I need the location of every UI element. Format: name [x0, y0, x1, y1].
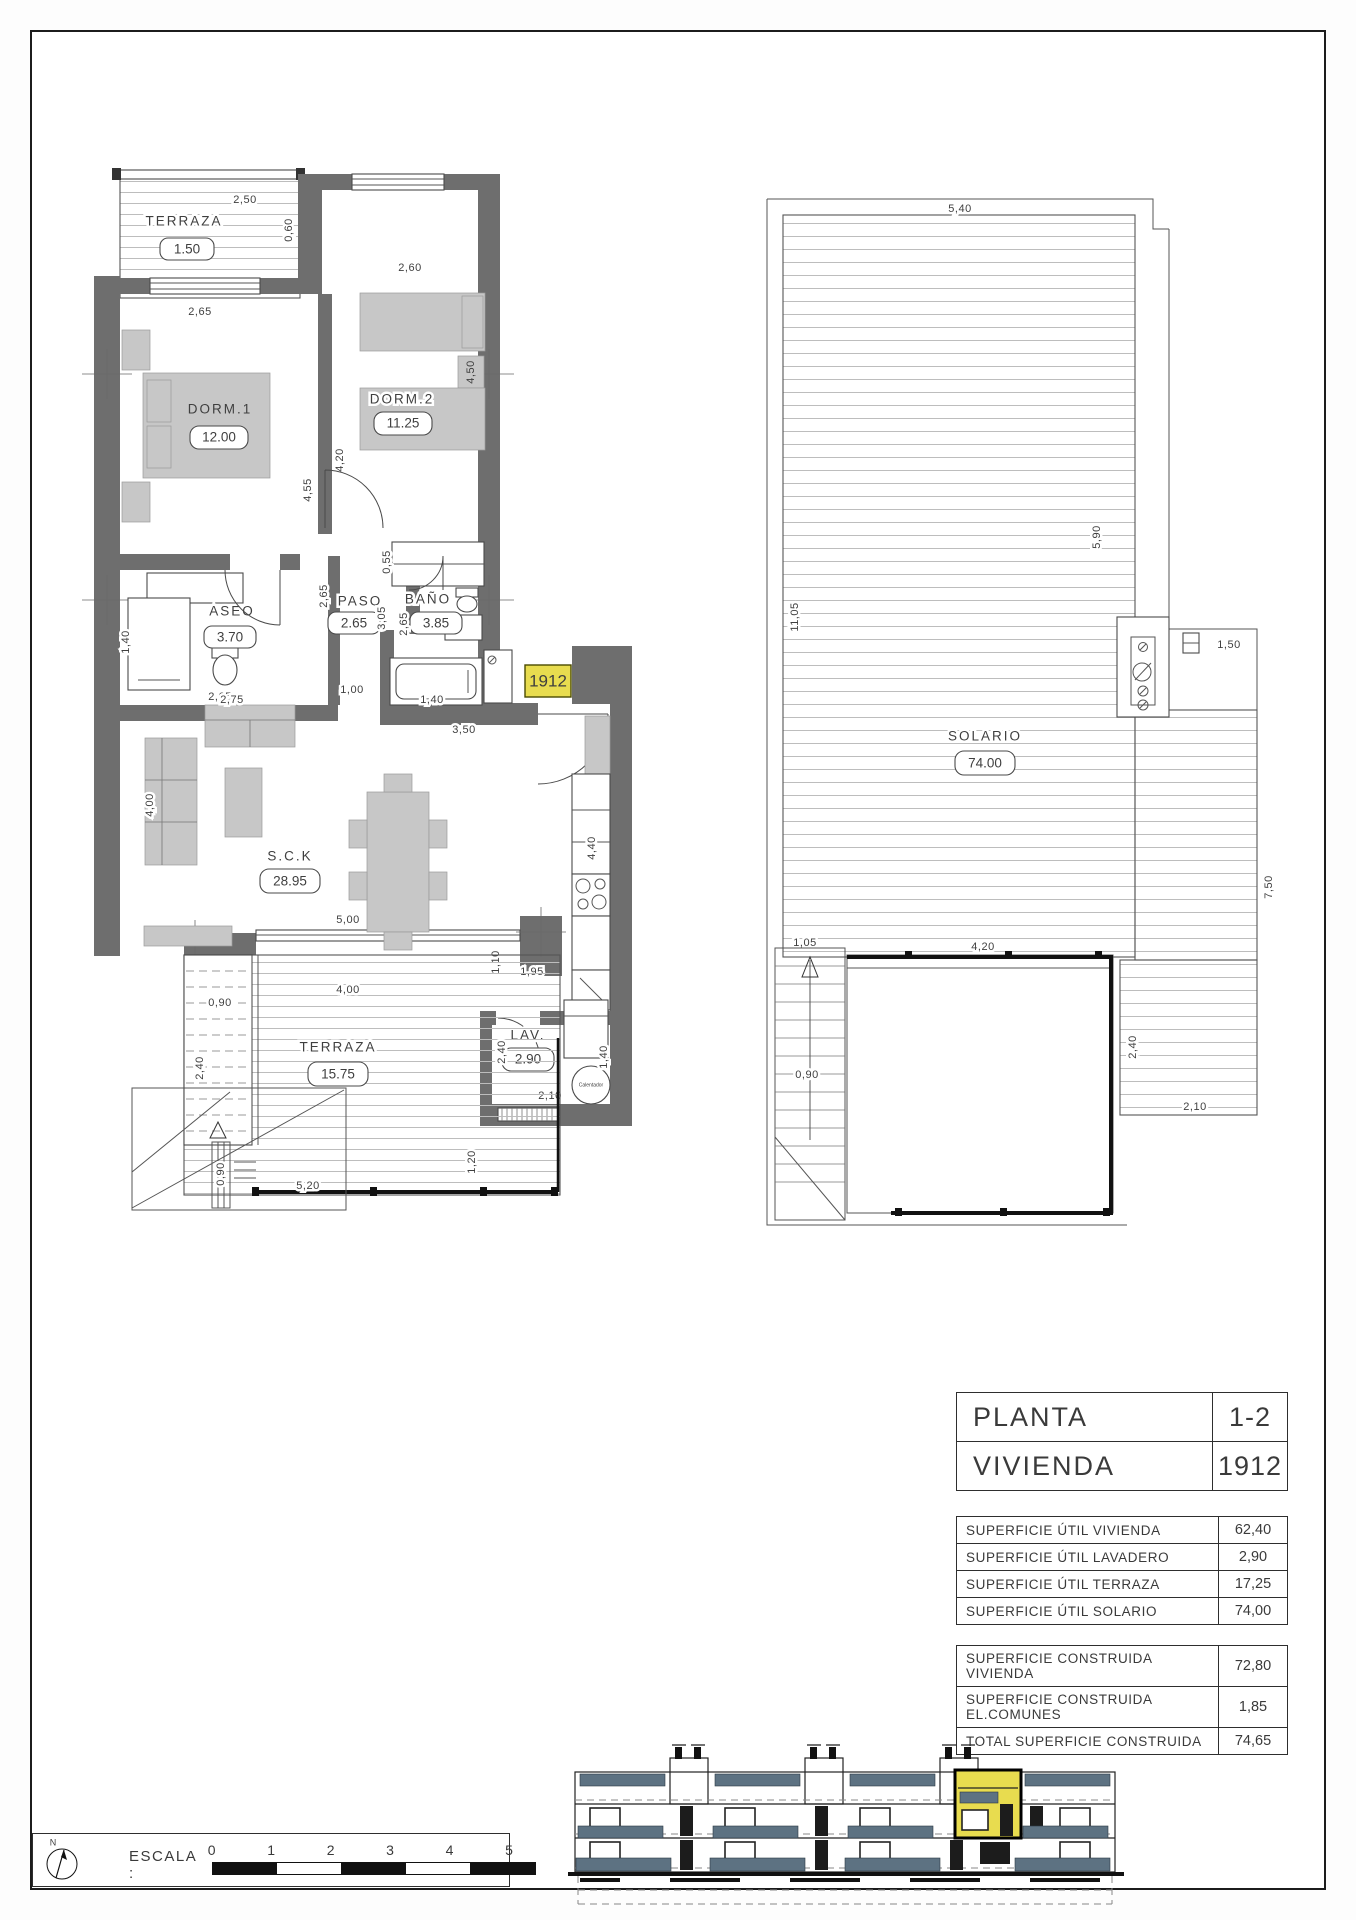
scale-track	[212, 1862, 536, 1875]
highlighted-unit	[955, 1770, 1021, 1838]
row-value: 74,65	[1219, 1728, 1288, 1755]
dim: 0,60	[283, 218, 295, 241]
area-aseo: 3.70	[217, 630, 243, 645]
dim: 1,50	[1217, 639, 1240, 651]
area-terraza-sup: 1.50	[174, 242, 200, 257]
dim: 4,40	[586, 836, 598, 859]
room-label-bano: BAÑO	[405, 592, 451, 607]
scale-tick: 3	[386, 1842, 394, 1858]
dim: 2,40	[496, 1040, 508, 1063]
row-label: SUPERFICIE ÚTIL VIVIENDA	[957, 1517, 1219, 1544]
dim: 11,05	[789, 602, 801, 631]
area-dorm1: 12.00	[202, 430, 236, 445]
solario-stairs: 0,90	[775, 948, 845, 1220]
dim: 2,65	[398, 612, 410, 635]
dim: 0,90	[208, 997, 231, 1009]
dim: 0,90	[215, 1162, 227, 1185]
table-row: SUPERFICIE ÚTIL SOLARIO 74,00	[957, 1598, 1288, 1625]
dim: 1,40	[120, 630, 132, 653]
dim: 5,40	[948, 203, 971, 215]
drawing-sheet: TERRAZA 1.50 2,50 0,60	[0, 0, 1356, 1920]
row-label: SUPERFICIE CONSTRUIDA EL.COMUNES	[957, 1687, 1219, 1728]
dim: 2,10	[1183, 1101, 1206, 1113]
scale-tick: 2	[327, 1842, 335, 1858]
dim: 2,40	[194, 1056, 206, 1079]
dim: 4,00	[144, 793, 156, 816]
row-label: SUPERFICIE ÚTIL TERRAZA	[957, 1571, 1219, 1598]
area-dorm2: 11.25	[387, 416, 420, 431]
room-label-aseo: ASEO	[209, 604, 255, 619]
dim: 2,75	[220, 694, 243, 706]
area-paso: 2.65	[341, 616, 367, 631]
dim: 2,50	[233, 194, 256, 206]
calentador-label: Calentador	[579, 1082, 604, 1088]
dim: 2,60	[398, 262, 421, 274]
scale-bar: 0 1 2 3 4 5	[212, 1842, 509, 1882]
room-label-dorm1: DORM.1	[188, 402, 253, 417]
table-row: PLANTA 1-2	[957, 1393, 1288, 1442]
superficie-util-table: SUPERFICIE ÚTIL VIVIENDA 62,40 SUPERFICI…	[956, 1516, 1288, 1625]
north-label: N	[50, 1837, 57, 1847]
dim: 4,55	[302, 478, 314, 501]
dim: 1,00	[340, 684, 363, 696]
vivienda-value: 1912	[1213, 1442, 1288, 1491]
scale-tick: 5	[505, 1842, 513, 1858]
scale-tick: 1	[267, 1842, 275, 1858]
dim: 3,50	[452, 724, 475, 736]
unit-header-table: PLANTA 1-2 VIVIENDA 1912	[956, 1392, 1288, 1491]
dim: 1,05	[793, 937, 816, 949]
dim: 2,65	[318, 584, 330, 607]
dim: 5,90	[1091, 525, 1103, 548]
room-label-terraza-sup: TERRAZA	[145, 214, 222, 229]
dorm2: 4,50 DORM.2 11.25 2,60 4,20 0,55	[334, 262, 485, 586]
info-tables: PLANTA 1-2 VIVIENDA 1912 SUPERFICIE ÚTIL…	[956, 1392, 1288, 1755]
dim: 4,20	[334, 448, 346, 471]
area-terraza-inf: 15.75	[321, 1067, 355, 1082]
vivienda-label: VIVIENDA	[957, 1442, 1213, 1491]
row-value: 17,25	[1219, 1571, 1288, 1598]
sck-living: S.C.K 28.95 2,75 4,00 5,00	[144, 694, 447, 950]
table-row: SUPERFICIE ÚTIL LAVADERO 2,90	[957, 1544, 1288, 1571]
row-value: 74,00	[1219, 1598, 1288, 1625]
unit-number: 1912	[529, 671, 567, 690]
dim: 3,05	[376, 606, 388, 629]
room-label-terraza-inf: TERRAZA	[299, 1040, 376, 1055]
unit-tag: 1912	[525, 665, 571, 697]
dim: 1,40	[420, 694, 443, 706]
lower-terrace: 0,90 2,40 TERRAZA 15.75 4,00 2,40 1,20 5…	[184, 955, 560, 1196]
row-value: 62,40	[1219, 1517, 1288, 1544]
room-label-solario: SOLARIO	[948, 729, 1022, 744]
area-bano: 3.85	[423, 616, 449, 631]
floor-plan-vivienda: TERRAZA 1.50 2,50 0,60	[80, 160, 640, 1230]
row-value: 2,90	[1219, 1544, 1288, 1571]
table-row: VIVIENDA 1912	[957, 1442, 1288, 1491]
scale-tick: 0	[208, 1842, 216, 1858]
row-value: 1,85	[1219, 1687, 1288, 1728]
row-label: SUPERFICIE ÚTIL SOLARIO	[957, 1598, 1219, 1625]
scale-tick: 4	[446, 1842, 454, 1858]
row-value: 72,80	[1219, 1646, 1288, 1687]
dim: 1,40	[598, 1045, 610, 1068]
north-arrow-icon: N	[41, 1836, 83, 1884]
dim: 1,20	[466, 1150, 478, 1173]
dim: 5,00	[336, 914, 359, 926]
dim: 7,50	[1263, 875, 1275, 898]
dim: 4,50	[465, 360, 477, 383]
aseo: ASEO 3.70 1,40 2,65	[120, 573, 256, 703]
row-label: SUPERFICIE CONSTRUIDA VIVIENDA	[957, 1646, 1219, 1687]
planta-label: PLANTA	[957, 1393, 1213, 1442]
floor-plan-solario: SOLARIO 74.00 5,40 5,90 11,05 1,50 7,50 …	[755, 185, 1285, 1235]
dim: 2,40	[1127, 1035, 1139, 1058]
scale-label: ESCALA :	[129, 1848, 202, 1882]
dim: 0,90	[795, 1069, 818, 1081]
dim: 5,20	[296, 1180, 319, 1192]
dorm1: DORM.1 12.00 2,65 4,55	[122, 306, 314, 522]
table-row: SUPERFICIE CONSTRUIDA VIVIENDA 72,80	[957, 1646, 1288, 1687]
dim: 2,65	[188, 306, 211, 318]
dim: 4,20	[971, 941, 994, 953]
table-row: SUPERFICIE ÚTIL VIVIENDA 62,40	[957, 1517, 1288, 1544]
row-label: SUPERFICIE ÚTIL LAVADERO	[957, 1544, 1219, 1571]
dim: 4,00	[336, 984, 359, 996]
area-sck: 28.95	[273, 874, 307, 889]
area-solario: 74.00	[968, 756, 1002, 771]
scale-bar-box: N ESCALA : 0 1 2 3 4 5	[32, 1833, 510, 1887]
dim: 0,55	[381, 550, 393, 573]
superficie-construida-table: SUPERFICIE CONSTRUIDA VIVIENDA 72,80 SUP…	[956, 1645, 1288, 1755]
elevation-facade	[568, 1745, 1124, 1904]
solar-equipment	[1117, 617, 1199, 717]
solario-boundary	[767, 199, 1257, 1225]
room-label-sck: S.C.K	[267, 849, 312, 864]
table-row: SUPERFICIE ÚTIL TERRAZA 17,25	[957, 1571, 1288, 1598]
table-row: SUPERFICIE CONSTRUIDA EL.COMUNES 1,85	[957, 1687, 1288, 1728]
void-opening	[847, 951, 1113, 1216]
building-elevation	[560, 1742, 1160, 1912]
planta-value: 1-2	[1213, 1393, 1288, 1442]
room-label-dorm2: DORM.2	[370, 392, 435, 407]
